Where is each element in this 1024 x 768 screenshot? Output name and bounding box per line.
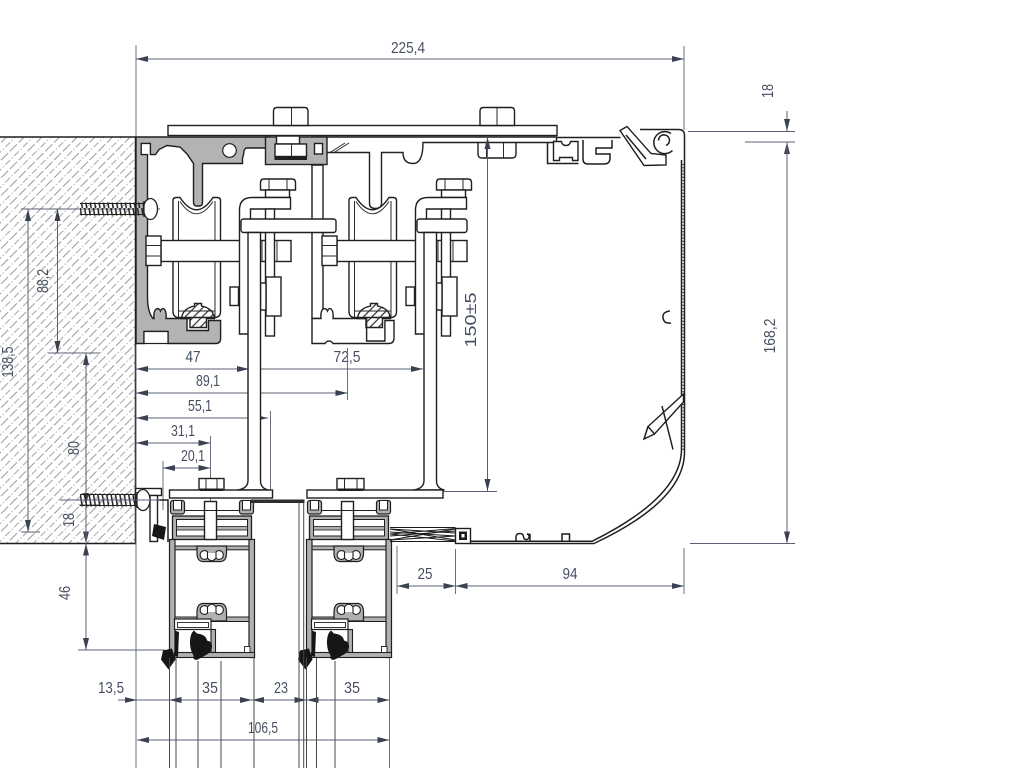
svg-text:46: 46 (57, 586, 74, 600)
svg-text:138,5: 138,5 (0, 347, 17, 378)
svg-text:168,2: 168,2 (762, 319, 779, 354)
svg-text:31,1: 31,1 (171, 423, 195, 440)
svg-text:35: 35 (202, 680, 218, 697)
svg-text:35: 35 (344, 680, 360, 697)
svg-text:80: 80 (66, 441, 83, 455)
svg-text:106,5: 106,5 (248, 720, 278, 737)
svg-text:47: 47 (186, 349, 201, 366)
svg-text:25: 25 (418, 566, 433, 583)
svg-text:72,5: 72,5 (334, 349, 361, 366)
svg-text:55,1: 55,1 (188, 398, 212, 415)
svg-text:94: 94 (563, 566, 578, 583)
svg-text:150±5: 150±5 (463, 293, 480, 348)
svg-text:18: 18 (760, 84, 777, 98)
svg-text:20,1: 20,1 (181, 448, 205, 465)
svg-text:225,4: 225,4 (391, 40, 425, 57)
svg-text:89,1: 89,1 (196, 373, 220, 390)
svg-text:18: 18 (61, 513, 78, 527)
svg-text:13,5: 13,5 (98, 680, 124, 697)
svg-text:23: 23 (274, 680, 288, 697)
svg-text:88,2: 88,2 (35, 269, 52, 293)
